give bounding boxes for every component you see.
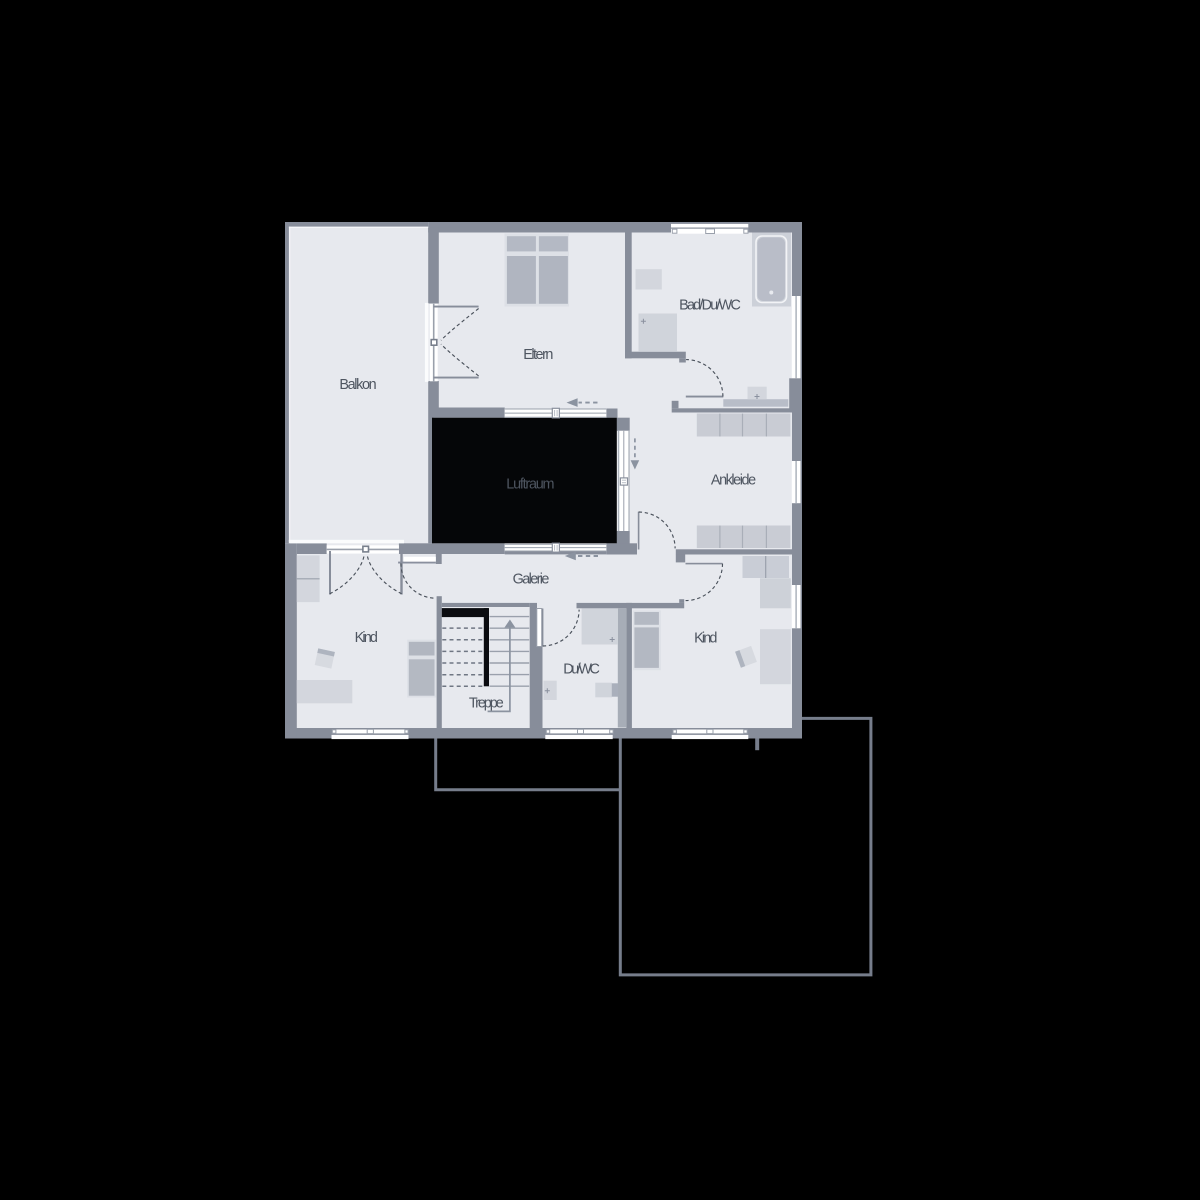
svg-text:Bad/Du/WC: Bad/Du/WC: [679, 298, 741, 314]
svg-text:Du/WC: Du/WC: [563, 661, 600, 677]
svg-text:Balkon: Balkon: [339, 377, 376, 393]
svg-text:Treppe: Treppe: [469, 696, 504, 712]
svg-text:Luftraum: Luftraum: [506, 476, 554, 492]
svg-text:Galerie: Galerie: [513, 571, 550, 587]
svg-text:Eltern: Eltern: [523, 347, 553, 363]
svg-text:Kind: Kind: [694, 630, 717, 646]
svg-text:Ankleide: Ankleide: [711, 473, 756, 489]
svg-text:Kind: Kind: [355, 630, 378, 646]
